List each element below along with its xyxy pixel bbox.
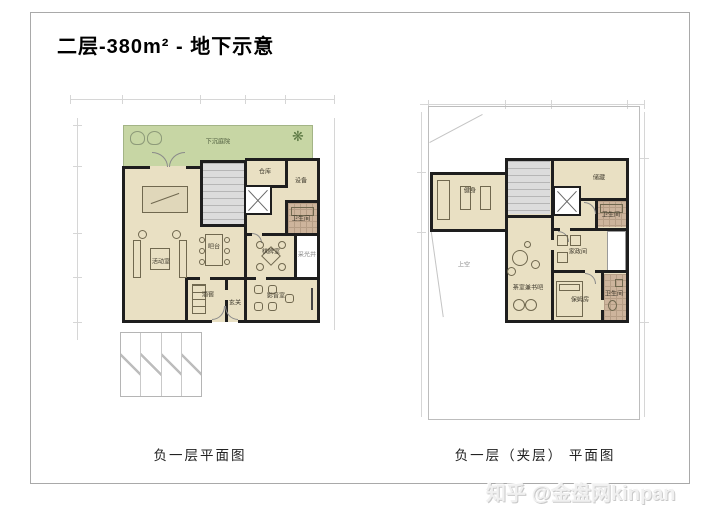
theater-seat bbox=[254, 302, 263, 311]
elevator-shaft bbox=[244, 185, 272, 215]
wall bbox=[185, 277, 188, 322]
dimension-tick bbox=[640, 158, 649, 159]
dimension-tick bbox=[644, 100, 645, 109]
armchair bbox=[172, 230, 181, 239]
sofa bbox=[179, 240, 187, 278]
room-label-bar: 吧台 bbox=[208, 244, 220, 250]
stairs bbox=[203, 163, 244, 224]
dimension-line bbox=[70, 99, 335, 100]
dimension-tick bbox=[200, 95, 201, 104]
tree-icon: ❋ bbox=[292, 129, 304, 143]
wall bbox=[225, 277, 228, 290]
wall bbox=[505, 215, 554, 218]
room-label-courtyard: 下沉庭院 bbox=[206, 139, 230, 145]
room-label-lightwell: 采光井 bbox=[298, 252, 316, 258]
bed-pillow bbox=[559, 284, 580, 291]
dimension-tick bbox=[245, 95, 246, 104]
lightwell-opening bbox=[607, 231, 626, 271]
rug-circle bbox=[513, 299, 525, 311]
dimension-tick bbox=[640, 322, 649, 323]
rug-circle bbox=[525, 299, 537, 311]
wall bbox=[317, 158, 320, 323]
wall bbox=[595, 270, 628, 273]
dimension-tick bbox=[73, 277, 82, 278]
wall bbox=[285, 158, 288, 188]
floor-plan-page: 二层-380m² - 地下示意 ❋ bbox=[0, 0, 720, 509]
wall bbox=[430, 172, 433, 232]
wall bbox=[122, 166, 125, 322]
watermark: 知乎 @金盘网kinpan bbox=[486, 477, 676, 506]
wall bbox=[505, 158, 508, 323]
theater-seat bbox=[254, 285, 263, 294]
wall bbox=[285, 200, 320, 203]
right-plan-caption: 负一层（夹层） 平面图 bbox=[435, 444, 635, 464]
billiard-table bbox=[142, 186, 188, 213]
chair bbox=[199, 259, 205, 265]
wall bbox=[505, 158, 629, 161]
room-label-activity: 活动室 bbox=[152, 259, 170, 265]
wall bbox=[553, 270, 585, 273]
wall bbox=[601, 310, 604, 322]
wall bbox=[244, 236, 247, 280]
wall bbox=[244, 160, 247, 187]
wall bbox=[244, 280, 247, 322]
wall bbox=[266, 277, 320, 280]
dimension-tick bbox=[417, 232, 426, 233]
chair bbox=[524, 241, 531, 248]
sink bbox=[615, 279, 623, 287]
armchair bbox=[138, 230, 147, 239]
page-title: 二层-380m² - 地下示意 bbox=[57, 30, 274, 59]
wall bbox=[285, 200, 288, 236]
wall bbox=[601, 272, 604, 300]
elevator-shaft bbox=[553, 186, 581, 216]
wall bbox=[244, 213, 247, 236]
room-label-void: 上空 bbox=[458, 262, 470, 268]
chair bbox=[199, 237, 205, 243]
wall bbox=[262, 233, 320, 236]
dimension-tick bbox=[417, 172, 426, 173]
room-label-storeroom: 仓库 bbox=[259, 169, 271, 175]
chair bbox=[224, 259, 230, 265]
wine-cabinet bbox=[192, 284, 206, 314]
shrub-icon bbox=[130, 131, 145, 145]
wall bbox=[505, 320, 629, 323]
room-label-bathroom-top: 卫生间 bbox=[602, 212, 620, 218]
wall bbox=[245, 158, 320, 161]
wall bbox=[551, 250, 554, 322]
washer bbox=[557, 235, 568, 246]
chair bbox=[224, 237, 230, 243]
room-label-housekeeping: 家政间 bbox=[569, 249, 587, 255]
room-label-storage: 储藏 bbox=[593, 175, 605, 181]
room-label-chess: 棋牌室 bbox=[262, 249, 280, 255]
dimension-tick bbox=[73, 233, 82, 234]
wall bbox=[122, 166, 150, 169]
room-label-gym: 健身 bbox=[464, 188, 476, 194]
chair bbox=[199, 248, 205, 254]
washer bbox=[557, 252, 568, 263]
shrub-icon bbox=[147, 131, 162, 145]
chair bbox=[531, 260, 540, 269]
chair bbox=[224, 248, 230, 254]
ramp-hatch bbox=[120, 332, 202, 397]
wall bbox=[294, 236, 297, 277]
dimension-tick bbox=[285, 95, 286, 104]
treadmill bbox=[437, 180, 450, 220]
room-label-bathroom-bottom: 卫生间 bbox=[605, 291, 623, 297]
wall bbox=[122, 320, 212, 323]
chair bbox=[507, 267, 516, 276]
wall bbox=[578, 198, 629, 201]
sofa bbox=[133, 240, 141, 278]
washer bbox=[570, 235, 581, 246]
room-label-nanny: 保姆房 bbox=[571, 297, 589, 303]
left-plan-caption: 负一层平面图 bbox=[110, 444, 290, 464]
room-label-foyer: 玄关 bbox=[229, 300, 241, 306]
dimension-tick bbox=[70, 95, 71, 104]
room-label-wine-cellar: 酒窖 bbox=[202, 292, 214, 298]
dimension-tick bbox=[334, 95, 335, 104]
chair bbox=[278, 263, 286, 271]
wall bbox=[551, 215, 554, 240]
dimension-line bbox=[334, 118, 335, 330]
dimension-tick bbox=[73, 166, 82, 167]
room-label-bathroom: 卫生间 bbox=[292, 216, 310, 222]
dimension-line bbox=[420, 104, 645, 105]
dimension-tick bbox=[73, 322, 82, 323]
room-label-av-room: 影音室 bbox=[267, 293, 285, 299]
dimension-tick bbox=[122, 95, 123, 104]
dimension-line bbox=[421, 112, 422, 417]
stairs bbox=[508, 161, 550, 214]
wall bbox=[200, 224, 247, 227]
theater-seat bbox=[268, 302, 277, 311]
gym-machine bbox=[480, 186, 491, 210]
room-label-equipment: 设备 bbox=[295, 178, 307, 184]
wall bbox=[430, 229, 508, 232]
tv-screen bbox=[311, 288, 313, 310]
wall bbox=[238, 320, 320, 323]
dimension-line bbox=[77, 118, 78, 340]
wall bbox=[200, 160, 247, 163]
toilet bbox=[608, 300, 617, 311]
dimension-tick bbox=[73, 125, 82, 126]
room-label-tea-book-bar: 茶室兼书吧 bbox=[513, 285, 544, 291]
wall bbox=[626, 158, 629, 323]
wall bbox=[430, 172, 508, 175]
chair bbox=[256, 263, 264, 271]
wall bbox=[570, 228, 628, 231]
theater-seat bbox=[285, 294, 294, 303]
wall bbox=[200, 160, 203, 227]
tea-table bbox=[512, 250, 528, 266]
